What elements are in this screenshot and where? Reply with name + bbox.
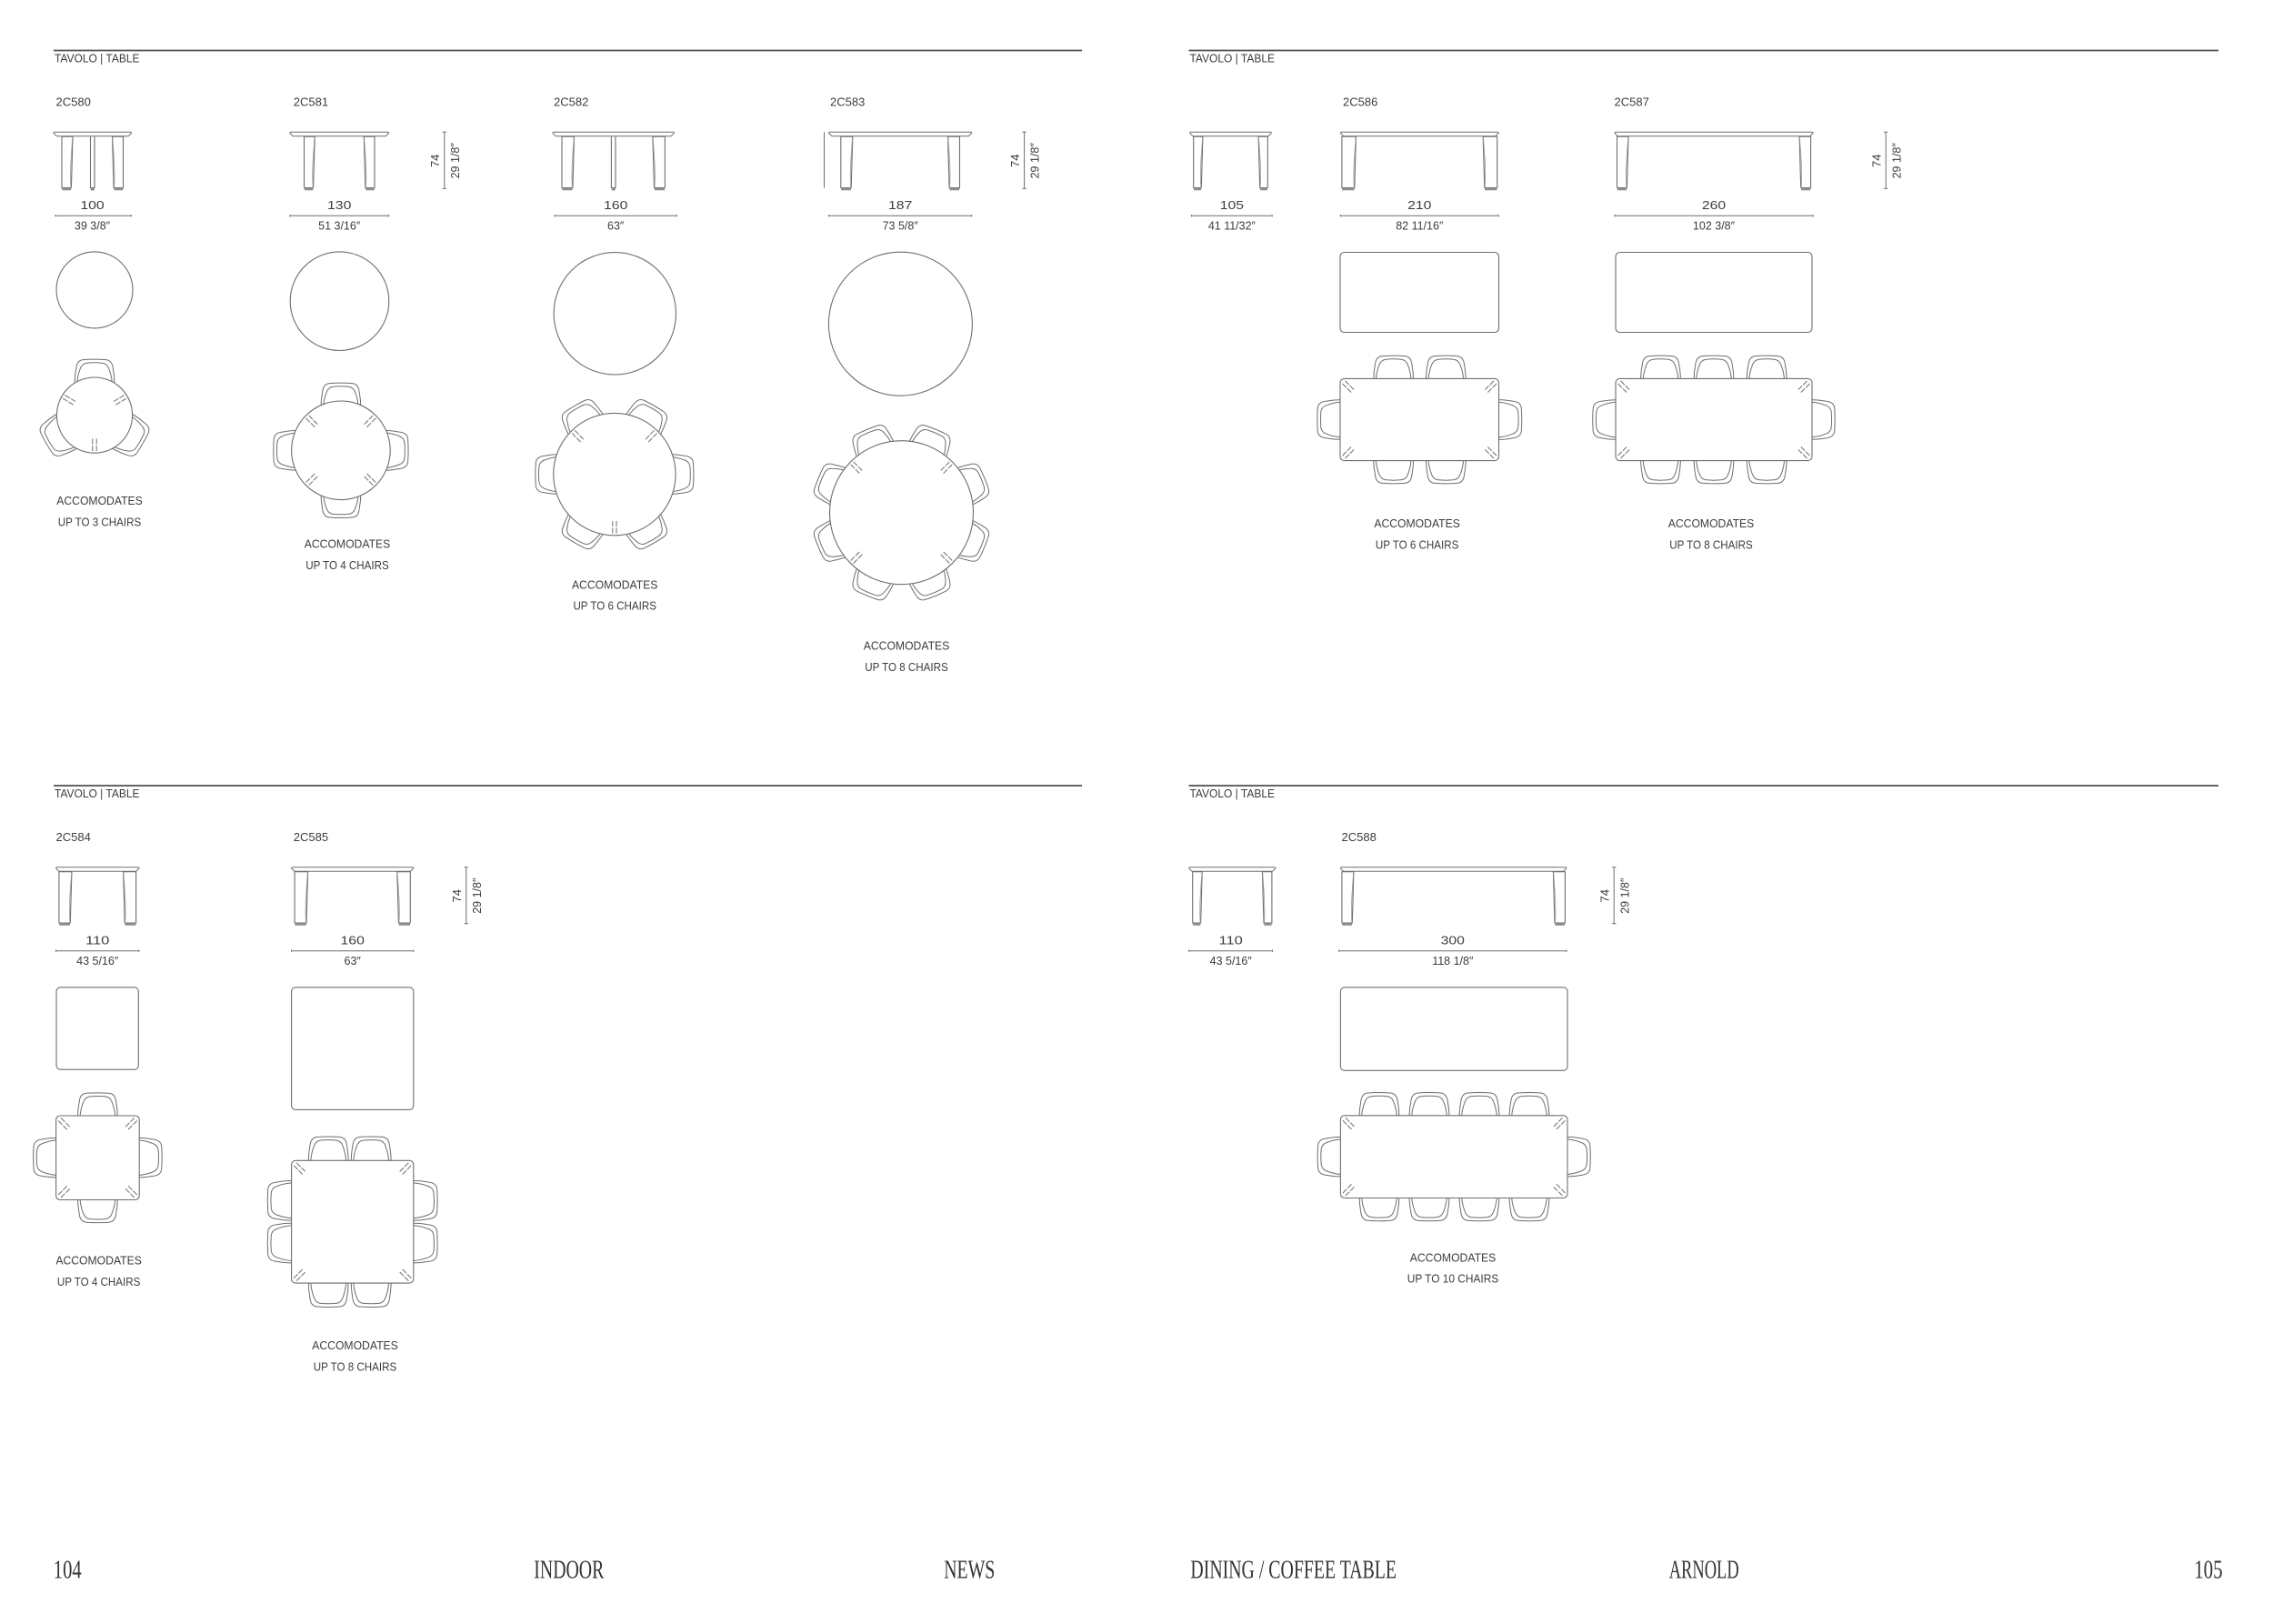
svg-text:105: 105 bbox=[1220, 198, 1244, 212]
svg-text:ACCOMODATES: ACCOMODATES bbox=[305, 538, 391, 551]
svg-text:2C580: 2C580 bbox=[56, 95, 91, 108]
svg-text:130: 130 bbox=[327, 198, 351, 212]
svg-text:UP TO 6 CHAIRS: UP TO 6 CHAIRS bbox=[1376, 538, 1459, 551]
svg-text:ARNOLD: ARNOLD bbox=[1669, 1557, 1739, 1585]
svg-text:ACCOMODATES: ACCOMODATES bbox=[55, 1255, 142, 1268]
svg-text:2C587: 2C587 bbox=[1615, 95, 1649, 108]
svg-text:ACCOMODATES: ACCOMODATES bbox=[1374, 517, 1460, 530]
svg-text:105: 105 bbox=[2194, 1557, 2222, 1585]
svg-text:41 11/32″: 41 11/32″ bbox=[1208, 219, 1257, 232]
svg-text:29 1/8″: 29 1/8″ bbox=[1618, 877, 1631, 914]
svg-text:2C582: 2C582 bbox=[554, 95, 588, 108]
svg-text:ACCOMODATES: ACCOMODATES bbox=[1668, 517, 1755, 530]
svg-text:29 1/8″: 29 1/8″ bbox=[471, 877, 484, 914]
svg-text:UP TO 4 CHAIRS: UP TO 4 CHAIRS bbox=[305, 559, 389, 572]
svg-text:ACCOMODATES: ACCOMODATES bbox=[1410, 1252, 1497, 1265]
svg-text:43 5/16″: 43 5/16″ bbox=[1210, 955, 1253, 967]
svg-text:110: 110 bbox=[85, 933, 109, 947]
svg-text:300: 300 bbox=[1441, 933, 1465, 947]
svg-text:2C583: 2C583 bbox=[830, 95, 865, 108]
svg-text:UP TO 8 CHAIRS: UP TO 8 CHAIRS bbox=[314, 1360, 397, 1373]
svg-text:UP TO 8 CHAIRS: UP TO 8 CHAIRS bbox=[865, 661, 948, 674]
svg-text:187: 187 bbox=[888, 198, 912, 212]
svg-text:29 1/8″: 29 1/8″ bbox=[1890, 143, 1903, 179]
svg-text:UP TO 4 CHAIRS: UP TO 4 CHAIRS bbox=[57, 1276, 141, 1288]
svg-text:DINING / COFFEE TABLE: DINING / COFFEE TABLE bbox=[1190, 1557, 1397, 1585]
svg-text:2C584: 2C584 bbox=[56, 830, 91, 844]
svg-text:160: 160 bbox=[604, 198, 627, 212]
svg-text:UP TO 3 CHAIRS: UP TO 3 CHAIRS bbox=[58, 516, 142, 528]
svg-text:118 1/8″: 118 1/8″ bbox=[1432, 955, 1474, 967]
svg-text:39 3/8″: 39 3/8″ bbox=[75, 219, 111, 232]
svg-text:43 5/16″: 43 5/16″ bbox=[76, 955, 119, 967]
svg-text:74: 74 bbox=[428, 155, 442, 167]
svg-text:TAVOLO | TABLE: TAVOLO | TABLE bbox=[1190, 53, 1276, 65]
svg-text:TAVOLO | TABLE: TAVOLO | TABLE bbox=[55, 53, 140, 65]
svg-text:NEWS: NEWS bbox=[944, 1557, 995, 1585]
svg-text:29 1/8″: 29 1/8″ bbox=[449, 143, 462, 179]
svg-text:ACCOMODATES: ACCOMODATES bbox=[56, 495, 143, 507]
svg-text:160: 160 bbox=[341, 933, 365, 947]
svg-text:74: 74 bbox=[1008, 155, 1022, 167]
svg-text:2C586: 2C586 bbox=[1343, 95, 1377, 108]
svg-text:74: 74 bbox=[450, 889, 464, 902]
svg-text:51 3/16″: 51 3/16″ bbox=[318, 219, 361, 232]
svg-text:TAVOLO | TABLE: TAVOLO | TABLE bbox=[55, 787, 140, 800]
svg-text:2C588: 2C588 bbox=[1342, 830, 1377, 844]
svg-text:UP TO 6 CHAIRS: UP TO 6 CHAIRS bbox=[573, 599, 656, 612]
svg-text:82 11/16″: 82 11/16″ bbox=[1396, 219, 1444, 232]
svg-text:210: 210 bbox=[1407, 198, 1431, 212]
svg-text:63″: 63″ bbox=[607, 219, 625, 232]
svg-text:UP TO 10 CHAIRS: UP TO 10 CHAIRS bbox=[1407, 1273, 1499, 1286]
svg-text:74: 74 bbox=[1598, 889, 1612, 902]
svg-text:ACCOMODATES: ACCOMODATES bbox=[864, 640, 950, 653]
svg-text:29 1/8″: 29 1/8″ bbox=[1029, 143, 1042, 179]
svg-text:2C585: 2C585 bbox=[294, 830, 328, 844]
svg-text:110: 110 bbox=[1219, 933, 1243, 947]
svg-text:104: 104 bbox=[54, 1557, 82, 1585]
svg-text:102 3/8″: 102 3/8″ bbox=[1693, 219, 1736, 232]
svg-text:74: 74 bbox=[1870, 155, 1884, 167]
svg-text:2C581: 2C581 bbox=[294, 95, 328, 108]
svg-text:63″: 63″ bbox=[345, 955, 362, 967]
svg-text:UP TO 8 CHAIRS: UP TO 8 CHAIRS bbox=[1669, 538, 1753, 551]
svg-text:73 5/8″: 73 5/8″ bbox=[883, 219, 919, 232]
svg-text:260: 260 bbox=[1702, 198, 1726, 212]
svg-text:INDOOR: INDOOR bbox=[534, 1557, 604, 1585]
svg-text:ACCOMODATES: ACCOMODATES bbox=[572, 578, 658, 591]
svg-text:TAVOLO | TABLE: TAVOLO | TABLE bbox=[1190, 787, 1276, 800]
svg-text:ACCOMODATES: ACCOMODATES bbox=[312, 1339, 398, 1352]
svg-text:100: 100 bbox=[80, 198, 104, 212]
